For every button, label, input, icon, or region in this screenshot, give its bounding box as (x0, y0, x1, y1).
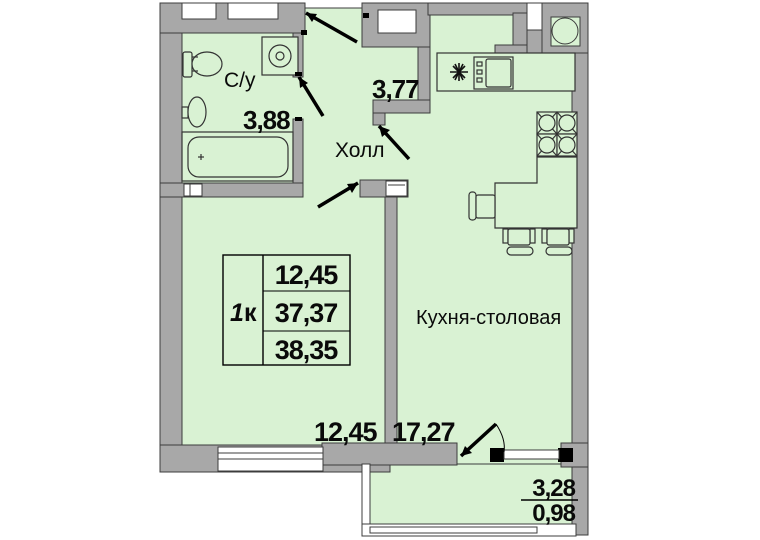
kitchen-area: 17,27 (392, 417, 455, 447)
wall-niche-band (495, 45, 527, 53)
hall-label: Холл (335, 139, 385, 162)
kitchen-balcony-window (504, 450, 559, 459)
hall-area: 3,77 (372, 74, 419, 104)
bathroom-label: С/у (224, 69, 256, 92)
chair-1-seat (508, 229, 530, 245)
chair-left-back (469, 192, 476, 220)
top-notch-1 (182, 3, 216, 19)
wall-bathroom-bottom (160, 183, 303, 197)
unit-letter: к (244, 299, 257, 327)
balcony-window-band (370, 527, 537, 533)
window-jamb-left (490, 448, 504, 462)
wall-hall-kitchen-vert (418, 47, 430, 102)
kitchen-sink-icon (552, 18, 578, 44)
chair-2-post (569, 229, 574, 243)
kitchen-sink-niche (551, 17, 580, 46)
room-area: 12,45 (314, 417, 378, 447)
bathroom-area: 3,88 (243, 105, 290, 135)
chair-left-seat (476, 195, 495, 218)
balcony-glazing-left (362, 464, 370, 528)
door-jamb-tick (363, 13, 369, 18)
chair-2-seat (547, 229, 569, 245)
duct-box (184, 184, 202, 196)
chair-1-post (530, 229, 535, 243)
hall-block-notch (378, 10, 416, 33)
wall-below-slot (527, 30, 542, 53)
door-jamb-tick (295, 117, 302, 121)
chair-1-post (503, 229, 508, 243)
t-cap-niche (386, 181, 407, 196)
bathtub-icon (182, 132, 293, 181)
balcony-area-counted: 0,98 (532, 500, 575, 527)
wall-bathroom-right-lower (293, 119, 303, 183)
oven-icon (474, 57, 513, 89)
balcony-area-full: 3,28 (532, 475, 575, 502)
window-jamb-right (558, 448, 573, 462)
kitchen-label: Кухня-столовая (416, 307, 561, 329)
toilet-icon (183, 52, 222, 77)
chair-2-post (542, 229, 547, 243)
door-jamb-tick (301, 30, 307, 35)
top-notch-2 (228, 3, 278, 19)
top-slot (527, 3, 542, 30)
wall-hall-stub (373, 113, 385, 125)
total-area-value: 37,37 (275, 298, 338, 328)
chair-1-cushion (507, 247, 533, 255)
living-area-value: 12,45 (275, 260, 339, 290)
wall-room-kitchen-divider (385, 197, 397, 445)
unit-digit: 1 (230, 299, 244, 327)
floor-plan-drawing: С/у 3,88 Холл 3,77 Кухня-столовая 17,27 … (0, 0, 760, 540)
hob-icon (537, 112, 577, 156)
total-with-balcony-value: 38,35 (275, 335, 339, 365)
door-jamb-tick (295, 72, 302, 76)
wall-left (160, 3, 182, 472)
chair-2-cushion (546, 247, 572, 255)
washing-machine-icon (262, 37, 298, 75)
floor-plan: С/у 3,88 Холл 3,77 Кухня-столовая 17,27 … (0, 0, 760, 540)
